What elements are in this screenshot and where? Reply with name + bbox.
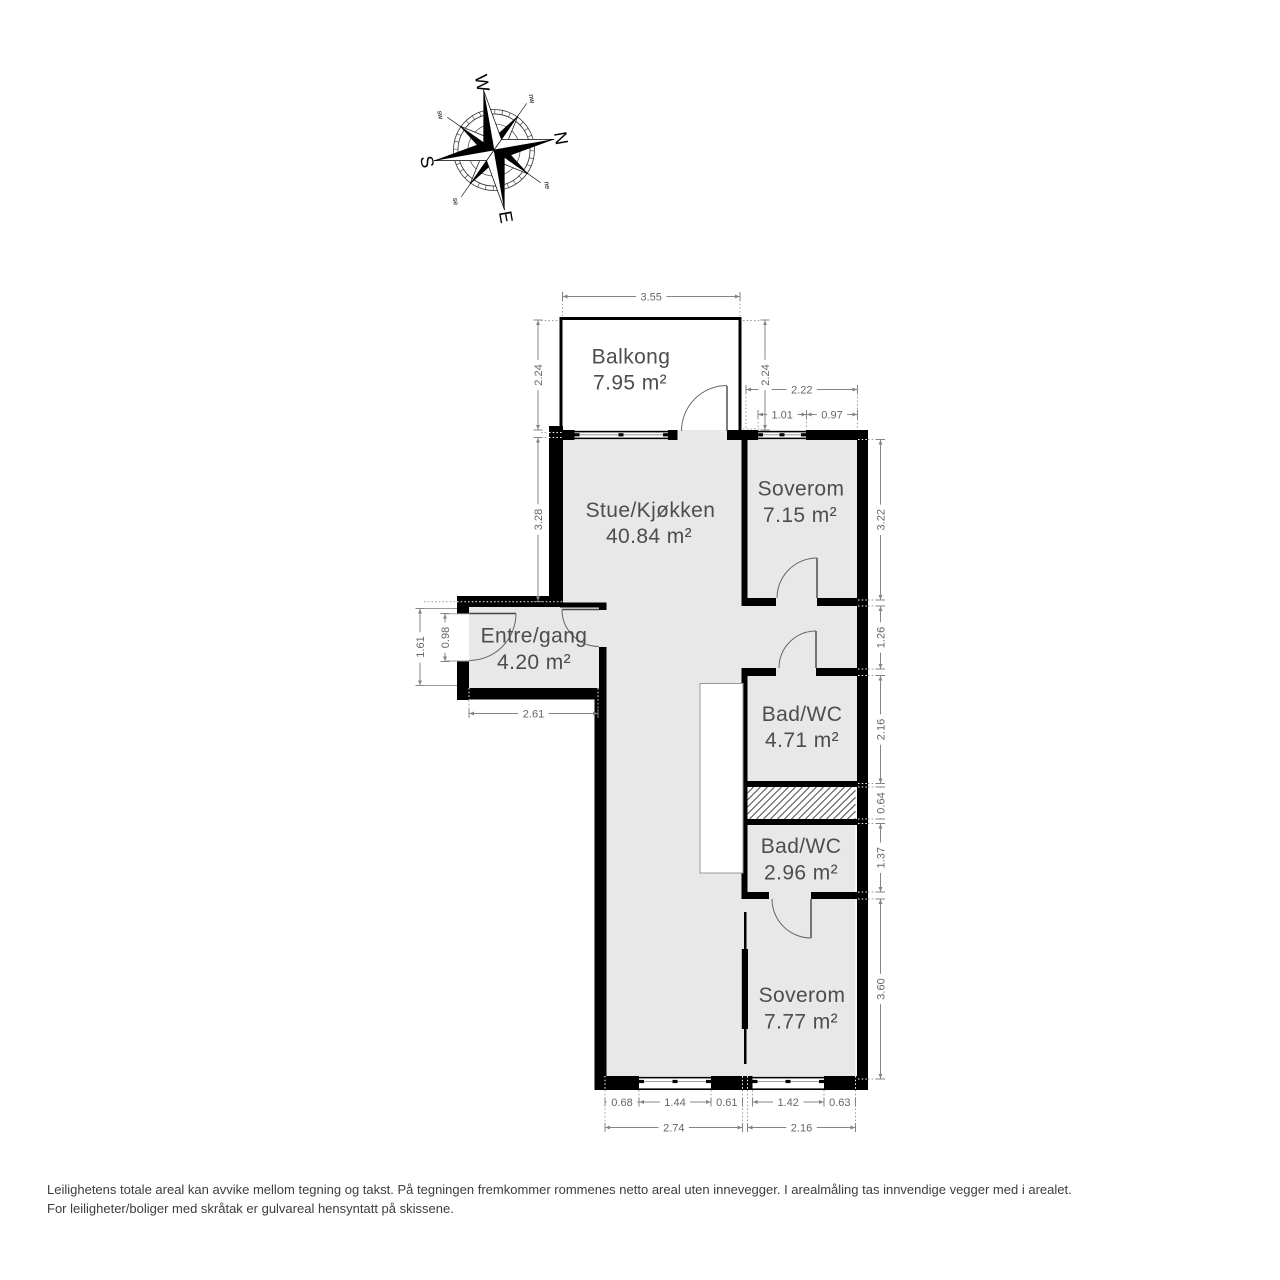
svg-text:Balkong: Balkong [592,346,671,369]
svg-text:1.37: 1.37 [875,847,887,868]
svg-text:1.61: 1.61 [415,636,427,657]
svg-text:2.22: 2.22 [791,384,812,396]
svg-text:1.26: 1.26 [875,627,887,648]
svg-text:0.63: 0.63 [829,1097,850,1109]
svg-text:2.96 m²: 2.96 m² [764,862,838,885]
svg-text:2.16: 2.16 [875,719,887,740]
svg-text:ne: ne [542,181,550,190]
svg-text:Soverom: Soverom [759,984,846,1007]
svg-text:0.64: 0.64 [875,792,887,813]
svg-text:Leilighetens totale areal kan: Leilighetens totale areal kan avvike mel… [47,1182,1072,1197]
svg-text:1.42: 1.42 [777,1097,798,1109]
svg-text:40.84 m²: 40.84 m² [606,525,692,548]
svg-text:3.28: 3.28 [533,509,545,530]
svg-text:7.95 m²: 7.95 m² [593,372,667,395]
svg-text:W: W [471,73,494,93]
svg-text:2.24: 2.24 [533,364,545,385]
svg-text:2.74: 2.74 [663,1122,684,1134]
svg-text:0.61: 0.61 [716,1097,737,1109]
svg-text:2.16: 2.16 [791,1122,812,1134]
svg-text:Bad/WC: Bad/WC [762,703,843,726]
svg-text:7.77 m²: 7.77 m² [764,1011,838,1034]
svg-text:se: se [451,197,459,206]
svg-text:Bad/WC: Bad/WC [761,835,842,858]
svg-text:0.68: 0.68 [611,1097,632,1109]
svg-text:4.71 m²: 4.71 m² [765,729,839,752]
svg-text:4.20 m²: 4.20 m² [497,651,571,674]
svg-text:2.24: 2.24 [760,364,772,385]
svg-text:Stue/Kjøkken: Stue/Kjøkken [586,499,716,522]
svg-text:7.15 m²: 7.15 m² [763,504,837,527]
svg-text:Soverom: Soverom [758,478,845,501]
svg-text:For leiligheter/boliger med sk: For leiligheter/boliger med skråtak er g… [47,1201,454,1216]
svg-text:Entre/gang: Entre/gang [481,625,588,648]
svg-text:3.22: 3.22 [875,509,887,530]
svg-text:3.55: 3.55 [640,291,661,303]
svg-text:0.97: 0.97 [821,409,842,421]
svg-text:2.61: 2.61 [523,708,544,720]
svg-text:3.60: 3.60 [875,978,887,999]
svg-text:1.44: 1.44 [664,1097,685,1109]
svg-text:1.01: 1.01 [771,409,792,421]
svg-text:0.98: 0.98 [440,627,452,648]
